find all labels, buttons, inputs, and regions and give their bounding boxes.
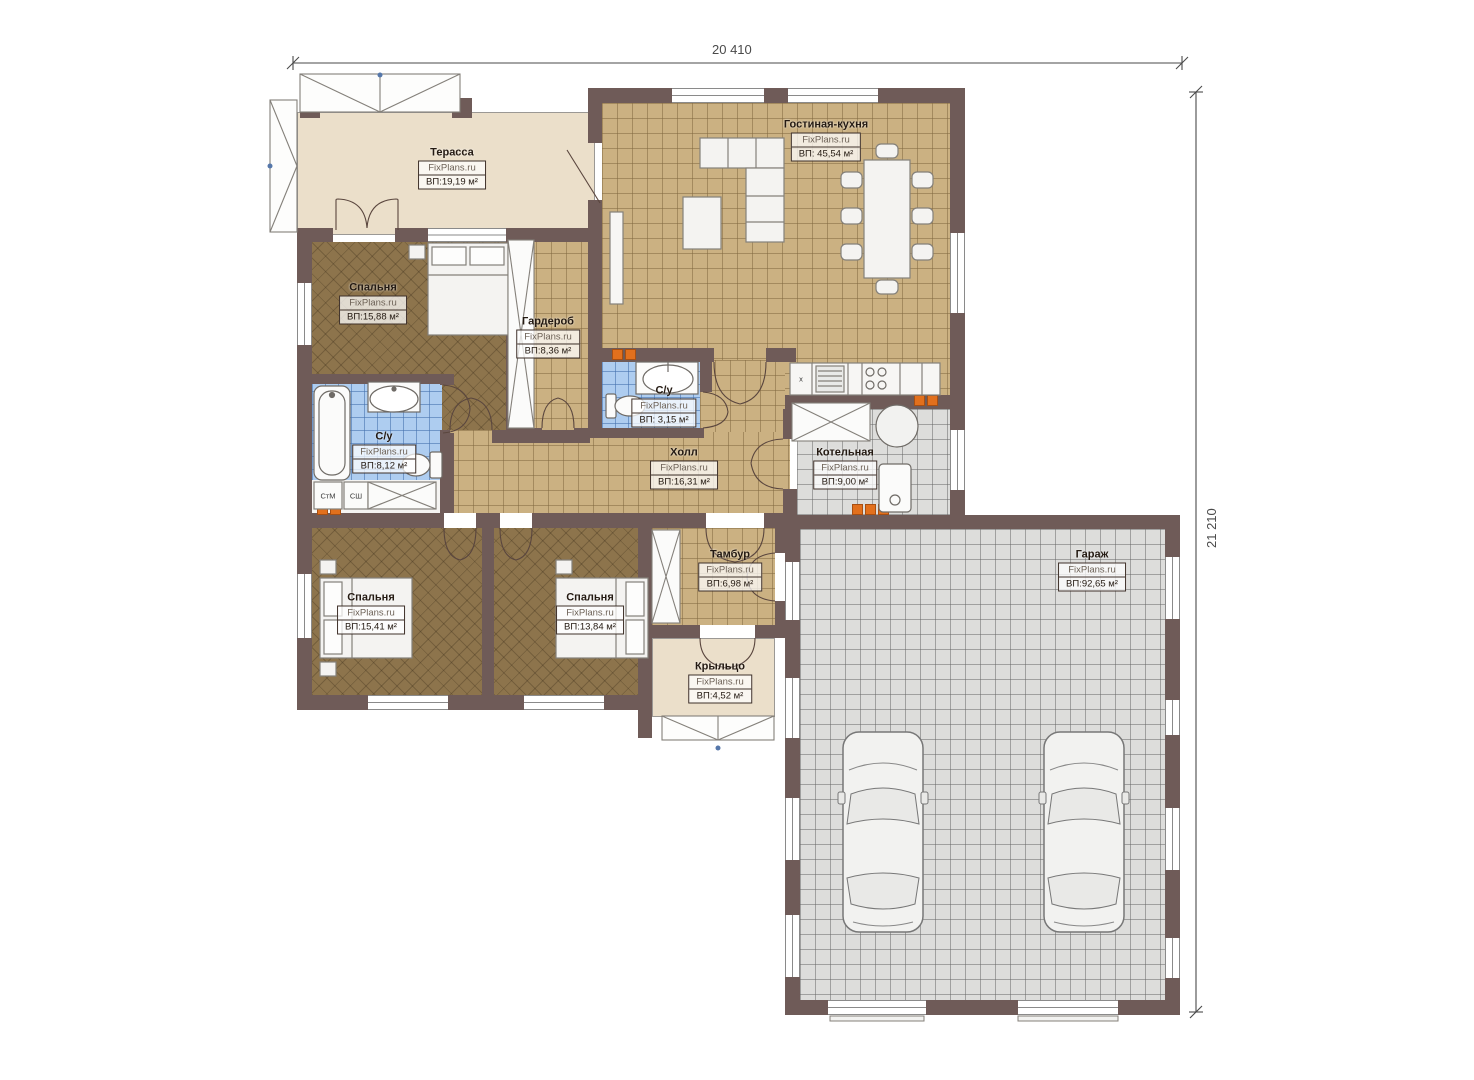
radiator	[852, 504, 889, 515]
garage-door-opening	[828, 1000, 926, 1015]
radiator	[612, 349, 636, 360]
watermark: FixPlans.ru	[814, 462, 876, 476]
wall-segment	[588, 103, 602, 143]
wall-segment	[950, 490, 965, 518]
wall-segment	[297, 228, 312, 283]
wall-segment	[638, 528, 652, 738]
wall-segment	[1165, 735, 1180, 808]
wall-segment	[785, 529, 800, 562]
window	[428, 228, 506, 242]
window	[1165, 808, 1180, 870]
watermark: FixPlans.ru	[517, 331, 579, 345]
room-label-bedroom-3: Спальня FixPlans.ruВП:13,84 м²	[556, 592, 624, 635]
wall-segment	[652, 625, 700, 638]
watermark: FixPlans.ru	[353, 446, 415, 460]
window	[785, 562, 800, 620]
garage-door-opening	[1018, 1000, 1118, 1015]
watermark: FixPlans.ru	[340, 297, 406, 311]
wall-segment	[1118, 1000, 1180, 1015]
watermark: FixPlans.ru	[689, 676, 751, 690]
radiator	[914, 395, 938, 406]
wall-segment	[574, 428, 602, 438]
window	[1165, 557, 1180, 619]
wall-segment	[1165, 619, 1180, 700]
room-floor-garage	[800, 529, 1166, 1000]
wall-segment	[1165, 515, 1180, 557]
wall-segment	[785, 1000, 828, 1015]
window	[297, 574, 312, 638]
floor-plan-canvas: 20 410 21 210 СтМ СШ х Терасса FixPlans.…	[0, 0, 1474, 1080]
room-label-terrace: Терасса FixPlans.ruВП:19,19 м²	[418, 147, 486, 190]
wall-segment	[602, 428, 704, 438]
wall-segment	[764, 88, 788, 103]
wall-segment	[783, 409, 797, 439]
wall-segment	[395, 228, 428, 242]
room-label-bathroom-main: С/у FixPlans.ruВП:8,12 м²	[352, 431, 416, 474]
kitchen-mark-label: х	[799, 375, 803, 384]
watermark: FixPlans.ru	[338, 607, 404, 621]
drying-cabinet-label: СШ	[350, 492, 362, 501]
garage-door-panel	[830, 1016, 1118, 1021]
wall-segment	[926, 1000, 1018, 1015]
watermark: FixPlans.ru	[1059, 564, 1125, 578]
wall-segment	[1165, 870, 1180, 938]
room-floor-hall-b	[700, 360, 785, 432]
dimension-height-label: 21 210	[1204, 508, 1219, 548]
watermark: FixPlans.ru	[699, 564, 761, 578]
washing-machine-label: СтМ	[320, 492, 335, 501]
wall-segment	[440, 374, 454, 385]
window	[785, 678, 800, 738]
window	[785, 915, 800, 977]
room-label-garage: Гараж FixPlans.ruВП:92,65 м²	[1058, 549, 1126, 592]
watermark: FixPlans.ru	[557, 607, 623, 621]
wall-segment	[766, 348, 796, 362]
wall-segment	[482, 528, 494, 695]
wall-segment	[448, 695, 524, 710]
wall-segment	[297, 513, 444, 528]
room-label-bedroom-1: Спальня FixPlans.ruВП:15,88 м²	[339, 282, 407, 325]
window	[950, 233, 965, 313]
window	[1165, 700, 1180, 735]
porch-stairs	[662, 716, 774, 751]
window	[297, 283, 312, 345]
dimension-width-label: 20 410	[712, 42, 752, 57]
room-label-bathroom-small: С/у FixPlans.ruВП: 3,15 м²	[631, 385, 696, 428]
room-label-hall: Холл FixPlans.ruВП:16,31 м²	[650, 447, 718, 490]
wall-segment	[297, 695, 368, 710]
wall-segment	[506, 228, 602, 242]
wall-segment	[785, 738, 800, 798]
room-label-living-kitchen: Гостиная-кухня FixPlans.ruВП: 45,54 м²	[784, 119, 868, 162]
wall-segment	[588, 238, 602, 438]
radiator	[317, 504, 341, 515]
room-label-bedroom-2: Спальня FixPlans.ruВП:15,41 м²	[337, 592, 405, 635]
window	[950, 430, 965, 490]
watermark: FixPlans.ru	[792, 134, 861, 148]
terrace-pillar	[300, 98, 320, 118]
window	[785, 798, 800, 860]
window	[368, 695, 448, 710]
room-label-tambour: Тамбур FixPlans.ruВП:6,98 м²	[698, 549, 762, 592]
wall-segment	[506, 428, 542, 438]
watermark: FixPlans.ru	[632, 400, 695, 414]
window	[788, 88, 878, 103]
room-label-porch: Крыльцо FixPlans.ruВП:4,52 м²	[688, 661, 752, 704]
terrace-pillar	[452, 98, 472, 118]
wall-segment	[790, 515, 1180, 529]
room-label-boiler-room: Котельная FixPlans.ruВП:9,00 м²	[813, 447, 877, 490]
wall-segment	[700, 360, 712, 392]
wall-segment	[588, 88, 672, 103]
window	[672, 88, 764, 103]
watermark: FixPlans.ru	[419, 162, 485, 176]
wall-segment	[785, 620, 800, 678]
wall-segment	[950, 88, 965, 233]
window	[1165, 938, 1180, 978]
wall-segment	[506, 238, 512, 430]
watermark: FixPlans.ru	[651, 462, 717, 476]
wall-segment	[950, 313, 965, 430]
wall-segment	[785, 860, 800, 915]
room-label-wardrobe: Гардероб FixPlans.ruВП:8,36 м²	[516, 316, 580, 359]
window	[524, 695, 604, 710]
wall-segment	[297, 345, 312, 574]
wall-segment	[312, 374, 442, 384]
wall-segment	[476, 513, 500, 528]
wall-segment	[532, 513, 706, 528]
wall-segment	[440, 433, 454, 513]
